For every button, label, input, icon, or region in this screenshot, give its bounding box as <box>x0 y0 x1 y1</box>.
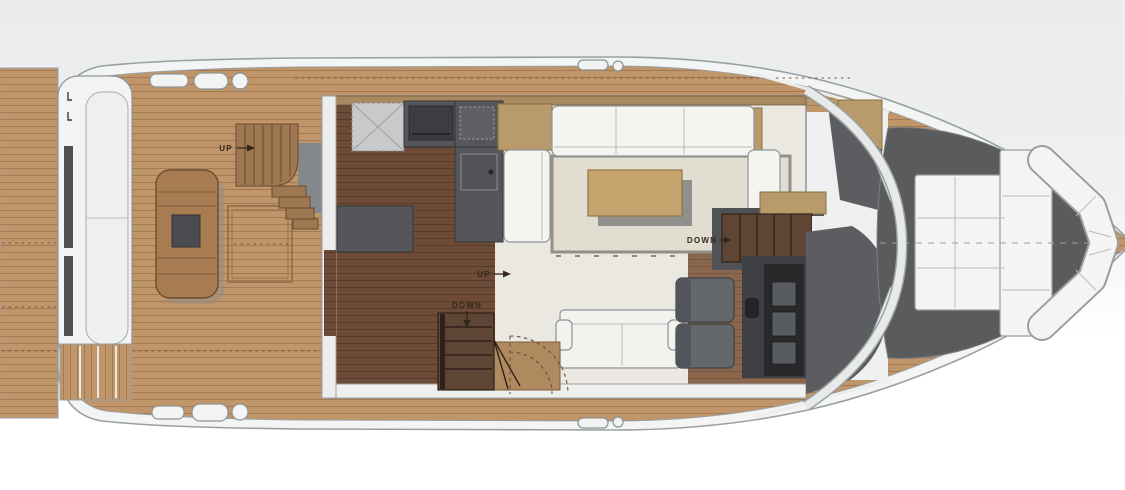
cooktop <box>409 106 453 140</box>
helm-screen <box>772 282 796 306</box>
helm-seat-backrest <box>676 278 691 322</box>
transom-vent <box>64 256 73 336</box>
deck-fitting <box>613 417 623 427</box>
stair-step <box>293 219 318 229</box>
salon-sofa-back <box>552 106 754 156</box>
galley-counter-lower <box>337 206 413 252</box>
down-label-companionway: DOWN <box>452 301 482 310</box>
up-label-companionway: UP <box>477 270 491 279</box>
up-label-aft: UP <box>219 144 233 153</box>
transom-seat-module <box>58 76 132 400</box>
deck-fitting <box>232 404 248 420</box>
stair-step <box>286 208 314 219</box>
deck-hatch-pill <box>152 406 184 419</box>
deck-hatch-pill <box>578 418 608 428</box>
deck-hatch-pill <box>194 73 228 89</box>
floor-plan-canvas: UP <box>0 0 1125 490</box>
stair-platform <box>494 342 560 390</box>
foredeck <box>876 128 1125 359</box>
down-label-salon: DOWN <box>687 236 717 245</box>
settee <box>560 310 680 368</box>
helm-seat-backrest <box>676 324 691 368</box>
aft-door-opening <box>324 250 336 336</box>
yacht-floor-plan: UP <box>0 0 1125 490</box>
deck-hatch-pill <box>192 404 228 421</box>
helm-screen <box>772 312 796 336</box>
steering-wheel <box>745 298 759 318</box>
stair-cabinet <box>760 192 826 214</box>
galley-hatch-square <box>460 107 494 139</box>
salon-sofa-left <box>504 150 550 242</box>
salon-cabinet-left <box>498 104 552 150</box>
sink-faucet <box>488 169 493 174</box>
cabin-aft-window-band <box>330 384 806 398</box>
transom-vent <box>64 146 73 248</box>
salon-stairs-down <box>722 214 812 262</box>
deck-hatch-pill <box>578 60 608 70</box>
deck-fitting <box>232 73 248 89</box>
aft-table-grill <box>172 215 200 247</box>
deck-hatch-pill <box>150 74 188 87</box>
stern-step <box>60 344 132 400</box>
stair-step <box>279 197 310 208</box>
helm-screen <box>772 342 796 364</box>
aft-bulkhead <box>322 96 336 398</box>
stair-step <box>272 186 306 197</box>
coffee-table <box>588 170 682 216</box>
swim-platform <box>0 68 58 418</box>
deck-fitting <box>613 61 623 71</box>
stair-rail <box>440 314 445 389</box>
